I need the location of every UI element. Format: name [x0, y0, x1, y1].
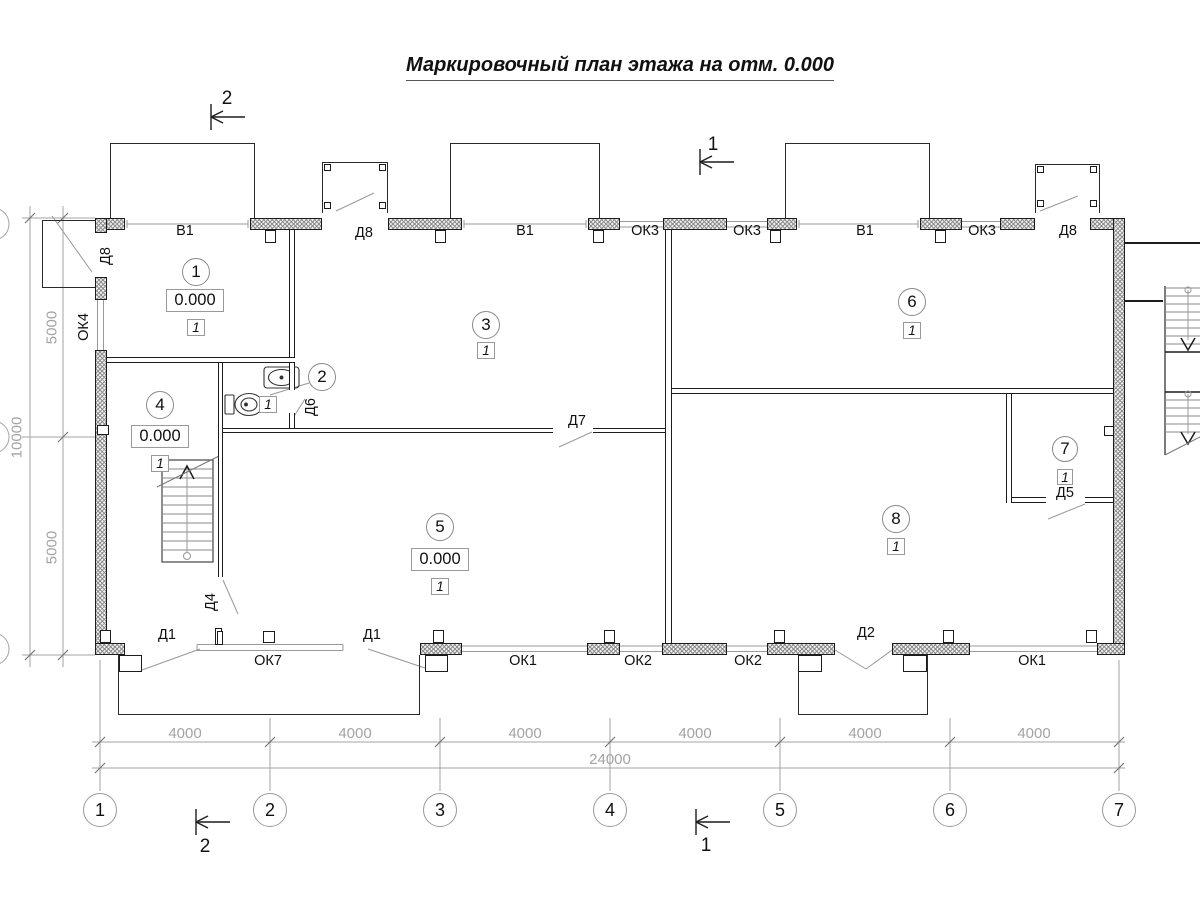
- door-label: Д6: [303, 387, 319, 427]
- axis-bubble-7: 7: [1102, 793, 1136, 827]
- toilet-fixture: [225, 394, 263, 416]
- left-dimension-upper: 5000: [44, 298, 61, 358]
- axis-bubble-6: 6: [933, 793, 967, 827]
- door-jamb: [593, 230, 604, 243]
- door-jamb: [433, 630, 444, 643]
- wall-pier: [588, 218, 620, 230]
- bay-dimension: 4000: [490, 725, 560, 742]
- section-mark-label: 2: [216, 88, 238, 110]
- interior-wall: [289, 230, 295, 390]
- porch-post: [379, 164, 386, 171]
- elevation-mark: 0.000: [166, 289, 224, 312]
- axis-bubble-3: 3: [423, 793, 457, 827]
- interior-wall: [107, 357, 295, 363]
- door-label: Д5: [1045, 485, 1085, 501]
- interior-wall: [593, 428, 667, 433]
- interior-wall: [1012, 497, 1046, 503]
- door-jamb: [943, 630, 954, 643]
- door-label: Д7: [557, 413, 597, 429]
- door-jamb: [100, 630, 111, 643]
- left-dimension-total: 10000: [9, 403, 26, 473]
- wall-pier: [250, 218, 322, 230]
- window-label: ОК3: [959, 223, 1005, 239]
- door-jamb: [604, 630, 615, 643]
- door-label: Д8: [344, 225, 384, 241]
- section-mark-label: 1: [695, 835, 717, 857]
- section-mark-label: 1: [702, 134, 724, 156]
- window-label: ОК3: [622, 223, 668, 239]
- axis-bubble-4: 4: [593, 793, 627, 827]
- door-label: Д1: [147, 627, 187, 643]
- door-jamb: [774, 630, 785, 643]
- window-label: В1: [845, 223, 885, 239]
- finish-type-box: 1: [887, 538, 905, 555]
- entrance-platform: [450, 143, 600, 218]
- door-leaf: [798, 655, 822, 672]
- porch-post: [379, 202, 386, 209]
- door-jamb: [263, 631, 275, 643]
- door-label: Д2: [846, 625, 886, 641]
- door-jamb: [265, 230, 276, 243]
- wall-pier: [663, 218, 727, 230]
- wall-pier: [892, 643, 970, 655]
- wall-pier: [1000, 218, 1035, 230]
- door-label: Д4: [203, 582, 219, 622]
- door-jamb: [97, 425, 109, 435]
- wall-pier: [388, 218, 462, 230]
- axis-bubble-2: 2: [253, 793, 287, 827]
- wall-pier: [420, 643, 462, 655]
- interior-wall: [1006, 394, 1012, 503]
- window-label: ОК4: [76, 304, 92, 350]
- window-label: ОК3: [724, 223, 770, 239]
- axis-bubble-1: 1: [83, 793, 117, 827]
- porch-post: [1090, 200, 1097, 207]
- total-dimension: 24000: [570, 751, 650, 768]
- wall-pier: [767, 218, 797, 230]
- door-jamb: [1104, 426, 1114, 436]
- porch-post: [324, 164, 331, 171]
- door-jamb: [1086, 630, 1097, 643]
- window-label: ОК7: [245, 653, 291, 669]
- door-label: Д8: [1048, 223, 1088, 239]
- finish-type-box: 1: [259, 396, 277, 413]
- finish-type-box: 1: [477, 342, 495, 359]
- window-label: В1: [505, 223, 545, 239]
- window-label: ОК1: [1009, 653, 1055, 669]
- window-glazing: [98, 220, 1098, 652]
- room-number-bubble: 6: [898, 288, 926, 316]
- left-dimension-lower: 5000: [44, 518, 61, 578]
- wall-pier: [662, 643, 727, 655]
- finish-type-box: 1: [151, 455, 169, 472]
- bay-dimension: 4000: [830, 725, 900, 742]
- door-leaf: [217, 631, 223, 645]
- wall-pier: [95, 643, 125, 655]
- interior-wall: [665, 230, 672, 643]
- wall-pier: [767, 643, 835, 655]
- elevation-mark: 0.000: [411, 548, 469, 571]
- elevation-mark: 0.000: [131, 425, 189, 448]
- door-label: Д1: [352, 627, 392, 643]
- door-jamb: [435, 230, 446, 243]
- window-label: ОК1: [500, 653, 546, 669]
- door-label: Д8: [98, 236, 114, 276]
- window-label: В1: [165, 223, 205, 239]
- wall-pier: [1113, 218, 1125, 655]
- door-jamb: [935, 230, 946, 243]
- interior-wall: [1085, 497, 1113, 503]
- entrance-platform: [42, 220, 95, 288]
- section-mark-label: 2: [194, 836, 216, 858]
- drawing-title: Маркировочный план этажа на отм. 0.000: [380, 54, 860, 81]
- room-number-bubble: 2: [308, 363, 336, 391]
- axis-bubble-5: 5: [763, 793, 797, 827]
- room-number-bubble: 4: [146, 391, 174, 419]
- entrance-platform: [785, 143, 930, 218]
- porch-post: [1037, 200, 1044, 207]
- door-jamb: [770, 230, 781, 243]
- finish-type-box: 1: [1057, 469, 1073, 485]
- finish-type-box: 1: [903, 322, 921, 339]
- door-leaf: [425, 655, 448, 672]
- wall-pier: [95, 218, 107, 233]
- room-number-bubble: 1: [182, 258, 210, 286]
- wall-pier: [95, 277, 107, 300]
- room-number-bubble: 5: [426, 513, 454, 541]
- window-label: ОК2: [615, 653, 661, 669]
- interior-wall: [223, 428, 553, 433]
- entrance-platform: [110, 143, 255, 218]
- porch-post: [324, 202, 331, 209]
- wall-pier: [920, 218, 962, 230]
- wall-pier: [95, 350, 107, 655]
- bay-dimension: 4000: [660, 725, 730, 742]
- porch-post: [1090, 166, 1097, 173]
- bay-dimension: 4000: [150, 725, 220, 742]
- window-label: ОК2: [725, 653, 771, 669]
- floor-plan-canvas: Маркировочный план этажа на отм. 0.000: [0, 0, 1200, 900]
- wall-pier: [1097, 643, 1125, 655]
- bay-dimension: 4000: [999, 725, 1069, 742]
- exterior-staircase: [1125, 243, 1200, 455]
- porch-post: [1037, 166, 1044, 173]
- interior-wall: [672, 388, 1113, 394]
- door-leaf: [903, 655, 927, 672]
- interior-wall: [218, 363, 223, 577]
- bay-dimension: 4000: [320, 725, 390, 742]
- room-number-bubble: 7: [1052, 436, 1078, 462]
- finish-type-box: 1: [431, 578, 449, 595]
- room-number-bubble: 8: [882, 505, 910, 533]
- room-number-bubble: 3: [472, 311, 500, 339]
- door-leaf: [119, 655, 142, 672]
- finish-type-box: 1: [187, 319, 205, 336]
